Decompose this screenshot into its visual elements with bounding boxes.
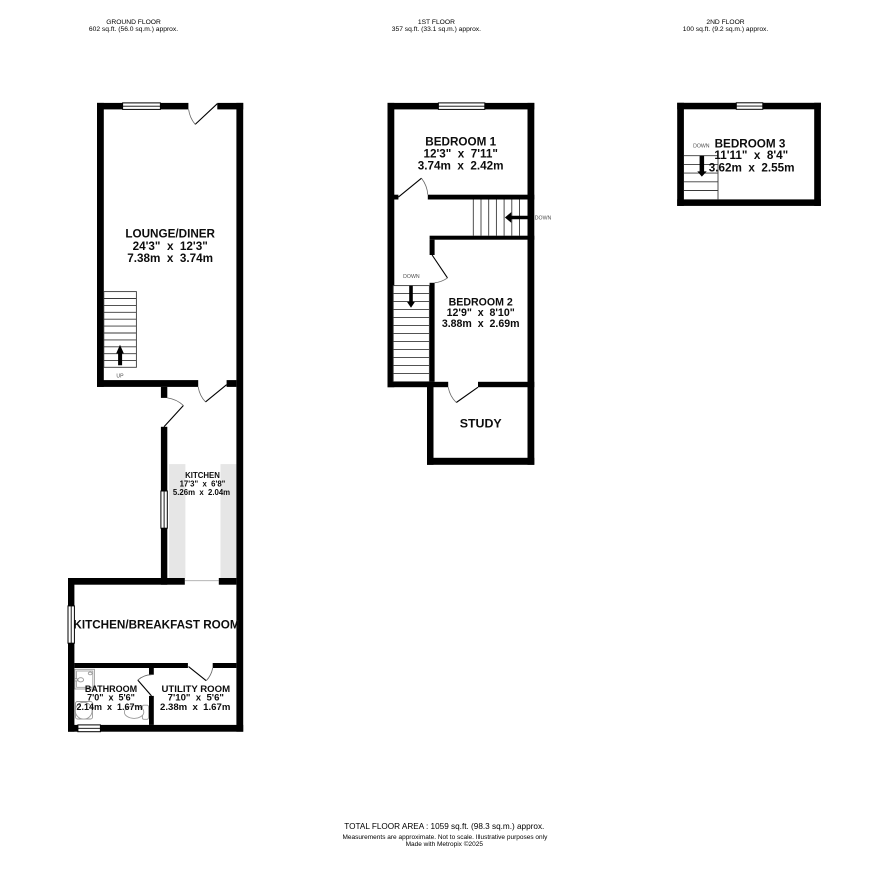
svg-text:5.26m x 2.04m: 5.26m x 2.04m xyxy=(173,488,230,497)
svg-text:Made with Metropix ©2025: Made with Metropix ©2025 xyxy=(406,840,484,848)
svg-text:2ND FLOOR: 2ND FLOOR xyxy=(706,19,744,26)
svg-text:357 sq.ft. (33.1 sq.m.) approx: 357 sq.ft. (33.1 sq.m.) approx. xyxy=(392,26,481,33)
svg-text:602 sq.ft. (56.0 sq.m.) approx: 602 sq.ft. (56.0 sq.m.) approx. xyxy=(89,26,178,33)
svg-text:1ST FLOOR: 1ST FLOOR xyxy=(418,19,455,26)
svg-text:LOUNGE/DINER: LOUNGE/DINER xyxy=(125,228,215,241)
svg-text:DOWN: DOWN xyxy=(403,274,420,280)
svg-text:GROUND FLOOR: GROUND FLOOR xyxy=(106,19,161,26)
svg-text:TOTAL FLOOR AREA : 1059 sq.ft.: TOTAL FLOOR AREA : 1059 sq.ft. (98.3 sq.… xyxy=(344,822,544,831)
svg-text:3.74m x 2.42m: 3.74m x 2.42m xyxy=(418,159,504,172)
svg-text:UP: UP xyxy=(116,374,124,380)
svg-text:3.62m x 2.55m: 3.62m x 2.55m xyxy=(709,161,795,174)
svg-text:7.38m x 3.74m: 7.38m x 3.74m xyxy=(127,252,213,265)
svg-text:11'11" x 8'4": 11'11" x 8'4" xyxy=(714,149,788,162)
svg-text:STUDY: STUDY xyxy=(460,417,503,431)
svg-text:2.38m x 1.67m: 2.38m x 1.67m xyxy=(160,702,230,713)
svg-text:7'0" x 5'6": 7'0" x 5'6" xyxy=(87,692,135,702)
svg-text:3.88m x 2.69m: 3.88m x 2.69m xyxy=(442,318,520,330)
svg-text:DOWN: DOWN xyxy=(535,215,552,221)
svg-text:100 sq.ft. (9.2 sq.m.) approx.: 100 sq.ft. (9.2 sq.m.) approx. xyxy=(683,26,769,33)
svg-text:2.14m x 1.67m: 2.14m x 1.67m xyxy=(76,702,142,712)
svg-text:DOWN: DOWN xyxy=(693,143,710,149)
svg-text:KITCHEN/BREAKFAST ROOM: KITCHEN/BREAKFAST ROOM xyxy=(73,618,239,631)
